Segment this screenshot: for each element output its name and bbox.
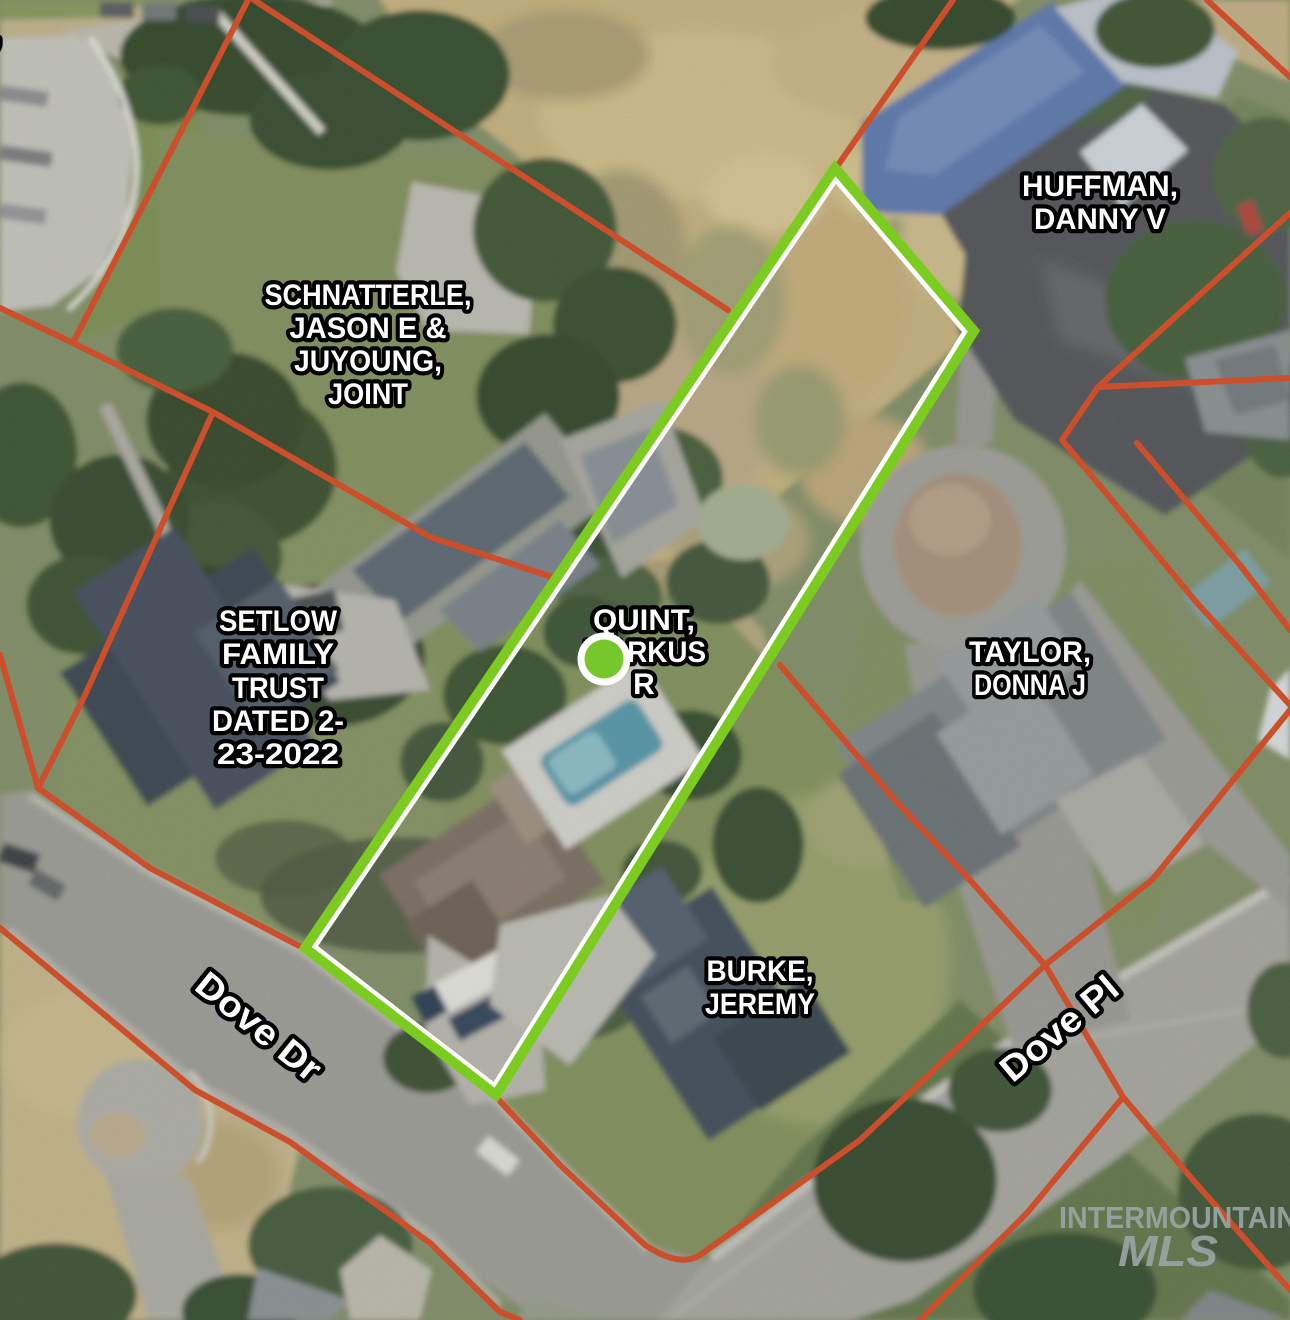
svg-text:DATED 2-: DATED 2- xyxy=(212,705,344,738)
svg-text:JEREMY: JEREMY xyxy=(705,988,815,1021)
svg-text:R: R xyxy=(633,668,655,701)
svg-text:BURKE,: BURKE, xyxy=(707,955,814,988)
svg-text:SCHNATTERLE,: SCHNATTERLE, xyxy=(265,279,472,312)
svg-text:TAYLOR,: TAYLOR, xyxy=(969,636,1091,669)
svg-text:MLS: MLS xyxy=(1118,1227,1218,1276)
svg-text:JASON E &: JASON E & xyxy=(290,312,447,345)
svg-text:,: , xyxy=(0,14,1,52)
svg-text:DANNY V: DANNY V xyxy=(1034,203,1166,236)
svg-text:QUINT,: QUINT, xyxy=(593,604,695,637)
svg-text:SETLOW: SETLOW xyxy=(219,605,338,638)
svg-text:DONNA J: DONNA J xyxy=(974,669,1086,702)
svg-text:JUYOUNG,: JUYOUNG, xyxy=(294,345,442,378)
svg-text:TRUST: TRUST xyxy=(232,672,324,705)
svg-text:JOINT: JOINT xyxy=(328,378,408,411)
svg-text:HUFFMAN,: HUFFMAN, xyxy=(1022,170,1178,203)
svg-text:FAMILY: FAMILY xyxy=(222,638,334,671)
svg-text:23-2022: 23-2022 xyxy=(217,738,339,771)
